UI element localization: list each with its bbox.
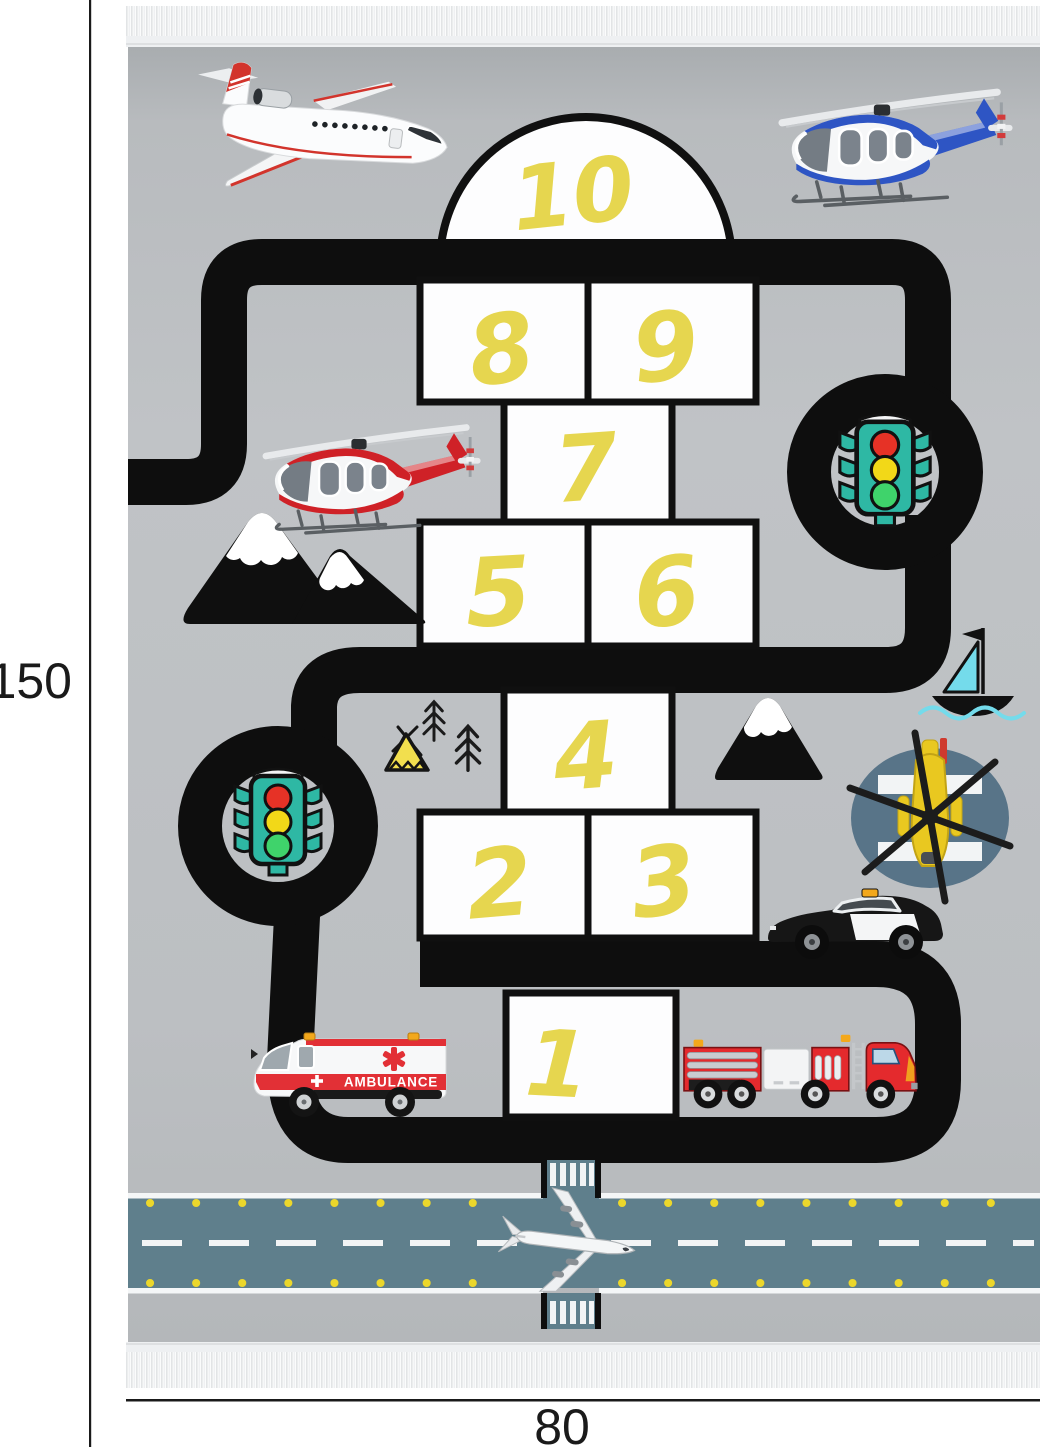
hopscotch-number-5: 5 xyxy=(462,536,534,649)
zebra-crossing-bottom-icon xyxy=(541,1293,601,1329)
beacon-icon xyxy=(304,1033,315,1040)
product-image: 10 8 9 7 5 6 4 2 3 1 xyxy=(0,0,1050,1447)
hopscotch-number-1: 1 xyxy=(523,1009,593,1119)
height-dimension-label: 150 xyxy=(0,653,72,709)
ambulance-label: AMBULANCE xyxy=(344,1075,438,1090)
zebra-crossing-top-icon xyxy=(541,1160,601,1198)
hopscotch-number-10: 10 xyxy=(507,136,640,251)
fringe-top xyxy=(126,6,1040,47)
hopscotch-number-9: 9 xyxy=(627,290,702,405)
height-dimension-line xyxy=(89,0,91,1447)
beacon-icon xyxy=(694,1040,704,1047)
beacon-icon xyxy=(408,1033,419,1040)
width-dimension-label: 80 xyxy=(534,1399,590,1447)
ladder-icon xyxy=(854,1043,864,1089)
hopscotch-number-6: 6 xyxy=(628,535,705,651)
beacon-icon xyxy=(841,1035,851,1042)
fringe-bottom xyxy=(126,1342,1040,1388)
rug-illustration: 10 8 9 7 5 6 4 2 3 1 xyxy=(0,0,1050,1447)
hopscotch-number-4: 4 xyxy=(549,701,621,812)
hopscotch-number-7: 7 xyxy=(550,413,621,524)
hopscotch-number-2: 2 xyxy=(461,826,536,941)
